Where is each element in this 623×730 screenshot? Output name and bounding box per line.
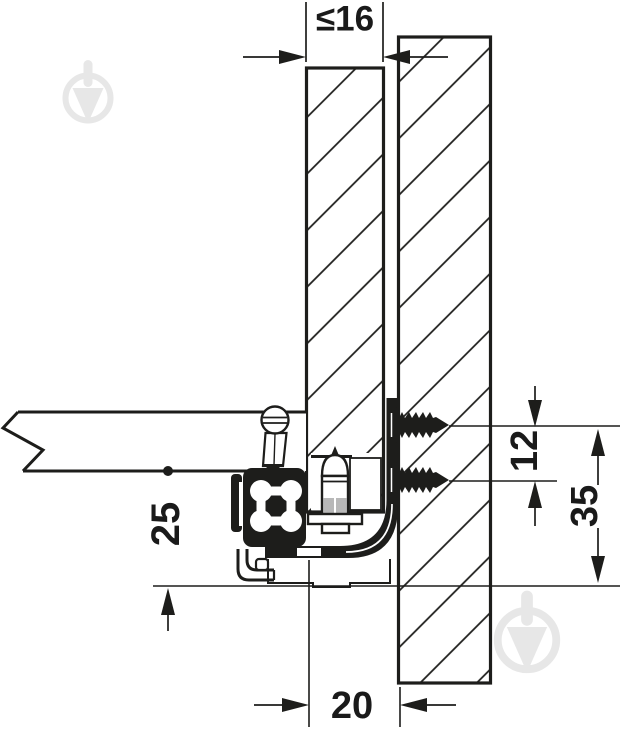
bracket-profile: [231, 468, 306, 547]
dimension-side-inset: [161, 588, 175, 631]
cover-plate: [268, 559, 390, 587]
dimension-origin-dot: [163, 466, 173, 476]
dimension-label-panel-thickness: ≤16: [316, 0, 374, 39]
dimension-label-bracket-height: 35: [564, 485, 606, 527]
dimension-label-screw-spacing: 12: [504, 430, 546, 472]
watermark-trowel-in-circle-icon: [66, 60, 111, 123]
back-panel: [307, 68, 384, 512]
technical-drawing-page: ≤16 12 35 25 20: [0, 0, 623, 730]
mounting-diagram: ≤16 12 35 25 20: [0, 0, 623, 730]
dimension-label-bottom-inset: 20: [331, 685, 373, 727]
dimension-label-side-inset: 25: [144, 502, 188, 547]
watermark-trowel-in-circle-icon: [498, 591, 557, 673]
